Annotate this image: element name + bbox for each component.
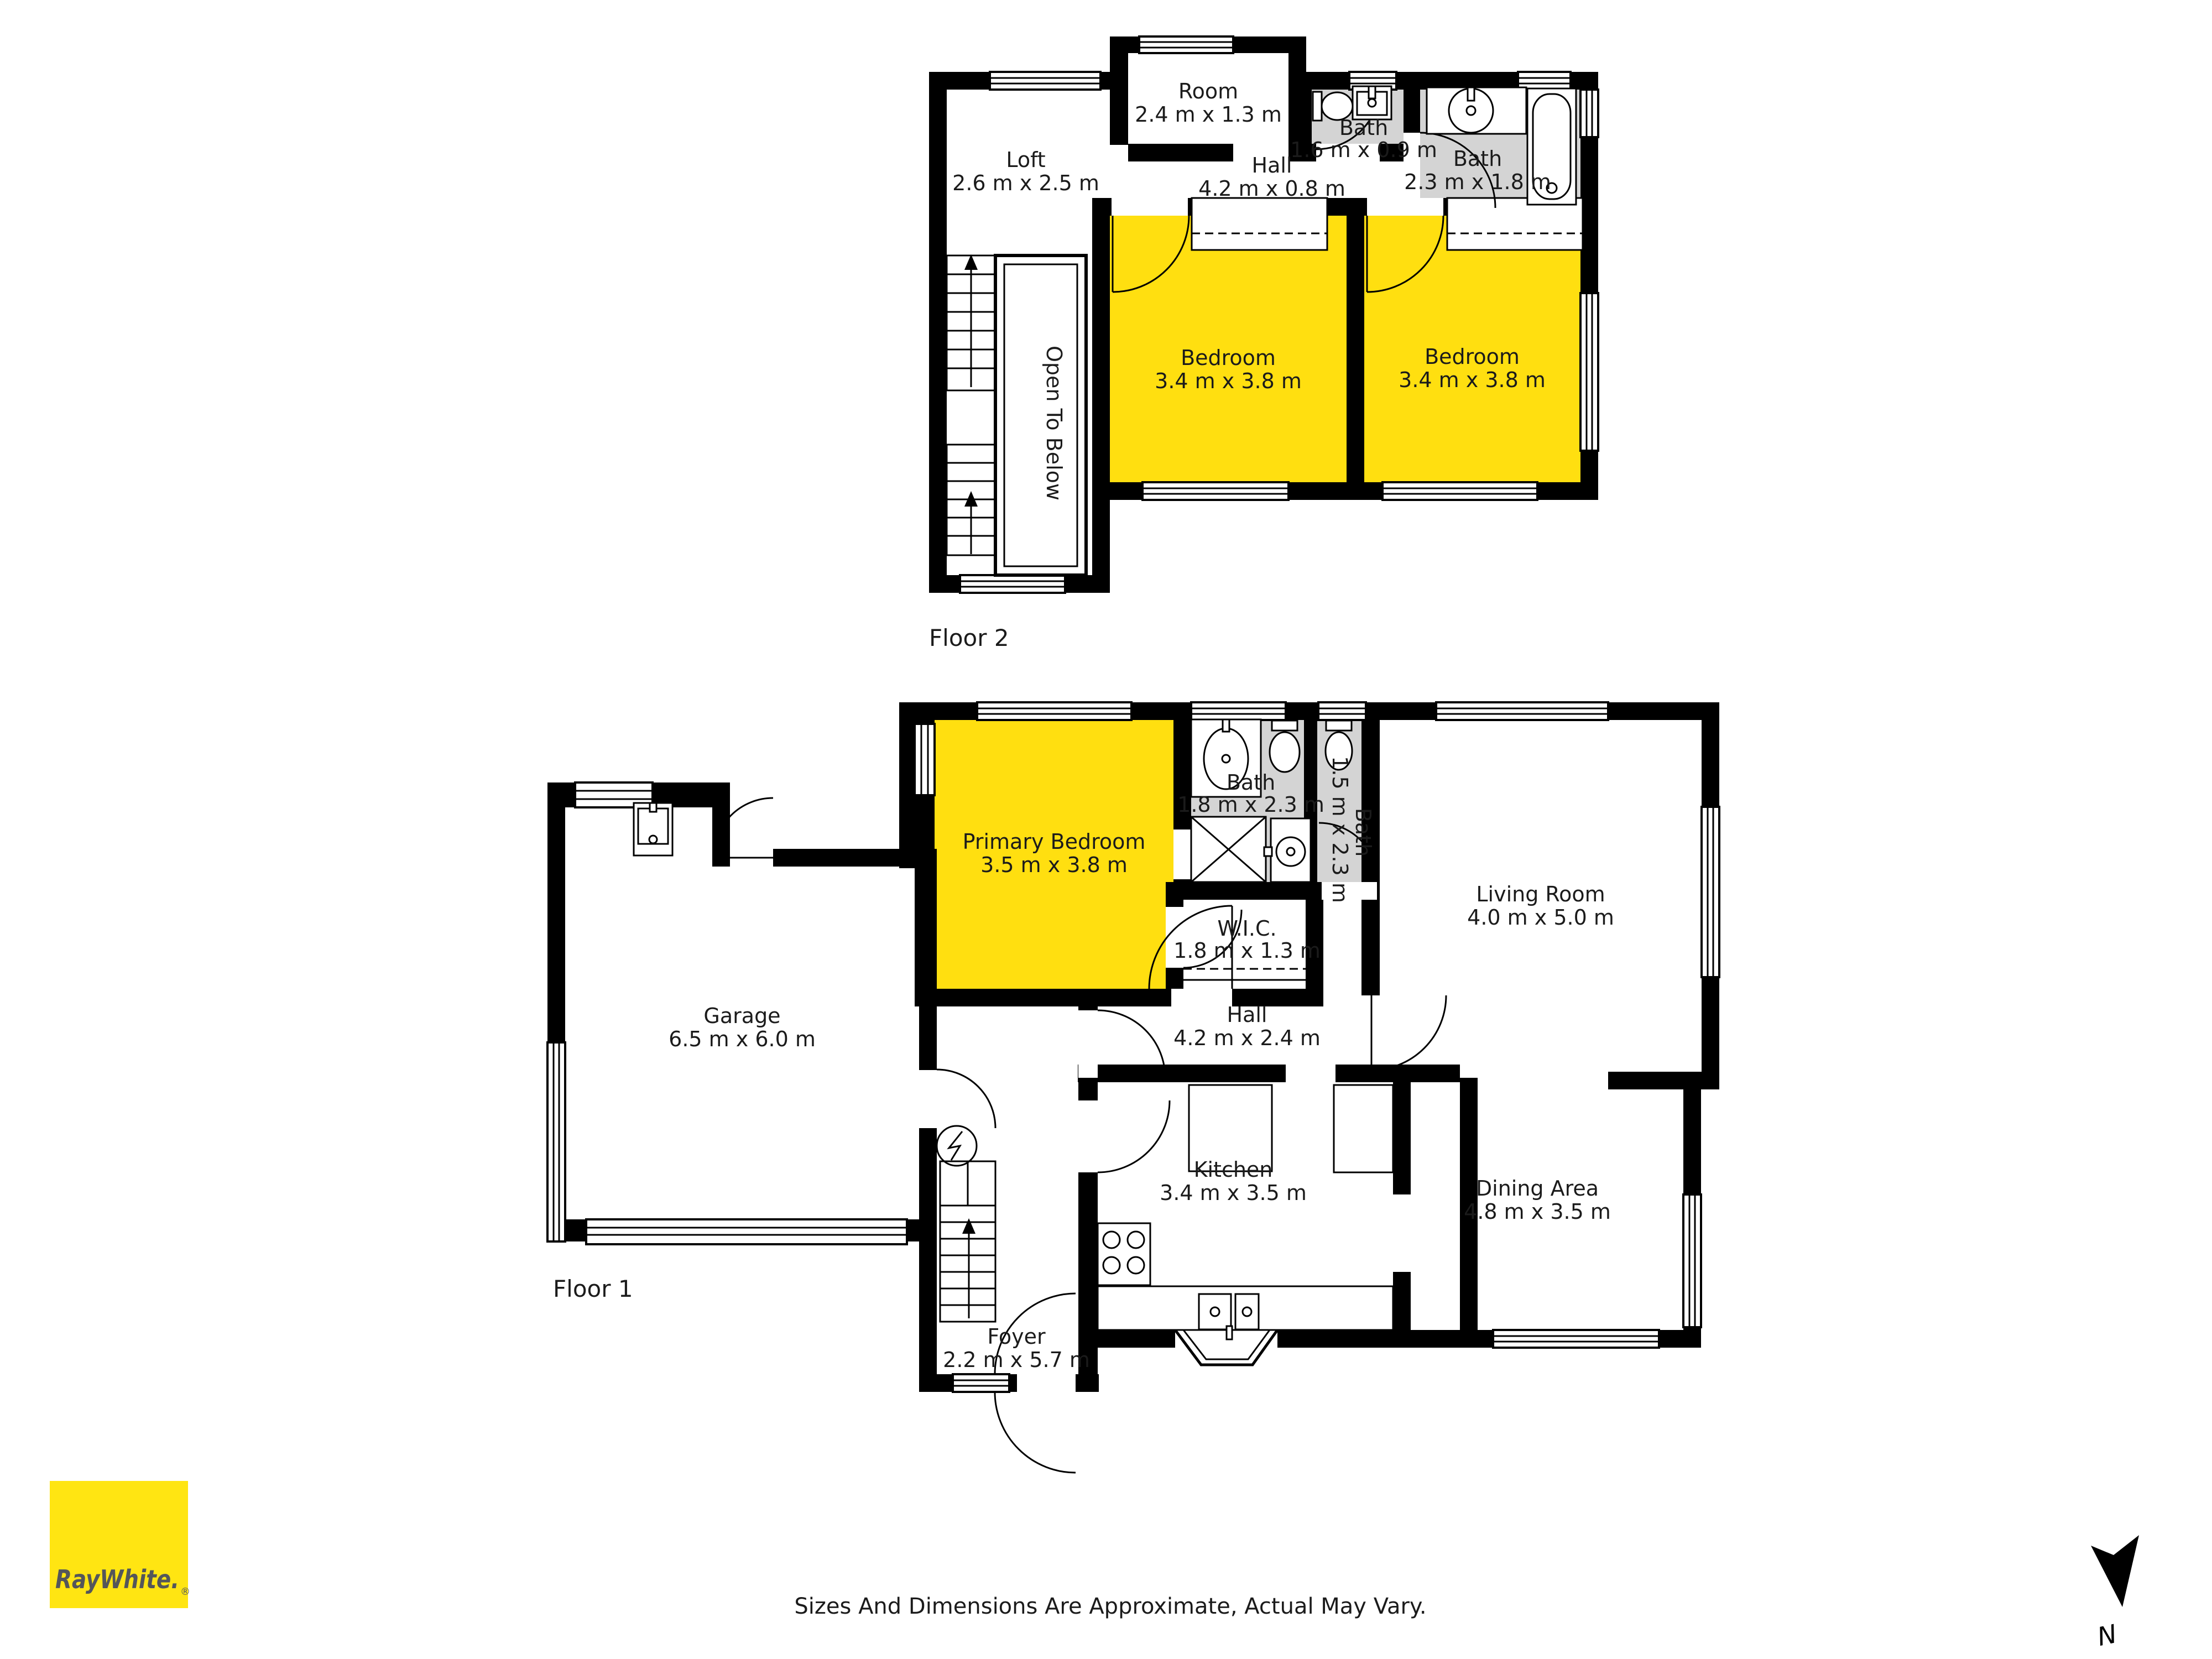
registered-mark: ® (180, 1586, 190, 1598)
foyer-dims: 2.2 m x 5.7 m (943, 1348, 1090, 1372)
floor-plan-page: Open To Below Loft 2.6 m x 2.5 m Room 2.… (0, 0, 2212, 1659)
bedroom-left-dims: 3.4 m x 3.8 m (1155, 369, 1302, 393)
closet (1192, 198, 1327, 250)
north-label: N (2095, 1619, 2120, 1652)
loft-label: Loft (1006, 148, 1045, 172)
kitchen-door-opening (1078, 1100, 1098, 1172)
window (1142, 482, 1288, 500)
dining-area-label: Dining Area (1476, 1176, 1599, 1201)
ensuite-door-opening (1173, 830, 1191, 879)
shower-icon (1191, 817, 1266, 882)
floor2-tag: Floor 2 (929, 624, 1009, 651)
floor2-bath-small-dims: 1.6 m x 0.9 m (1290, 138, 1437, 162)
floor2-hall-label: Hall (1252, 153, 1292, 178)
hall-landing-door-opening (1078, 1010, 1098, 1078)
sink-icon (1264, 818, 1311, 882)
floor-plan-canvas: Open To Below Loft 2.6 m x 2.5 m Room 2.… (0, 0, 2212, 1659)
window (1702, 807, 1719, 977)
garage-dims: 6.5 m x 6.0 m (669, 1027, 816, 1051)
window (1139, 36, 1233, 53)
window (953, 1374, 1009, 1392)
bedroom-right-label: Bedroom (1425, 345, 1520, 369)
open-to-below-shaft (995, 255, 1086, 575)
primary-bedroom-dims: 3.5 m x 3.8 m (980, 853, 1128, 877)
floor2-bedroom-left-door-opening (1112, 198, 1188, 216)
floor1-tag: Floor 1 (553, 1275, 633, 1302)
floor1-plan: Garage 6.5 m x 6.0 m Primary Bedroom 3.5… (547, 702, 1719, 1473)
window (1580, 90, 1598, 137)
floor1-hall-dims: 4.2 m x 2.4 m (1173, 1026, 1321, 1050)
room-label: Room (1178, 79, 1238, 103)
floor1-bath-narrow-dims: 1.5 m x 2.3 m (1328, 756, 1352, 903)
floor1-bath-narrow-label: Bath (1351, 808, 1375, 857)
stairs (947, 254, 995, 555)
bedroom-left-label: Bedroom (1181, 346, 1276, 370)
window (960, 575, 1065, 593)
window (1683, 1194, 1701, 1327)
floor2-bath-label: Bath (1453, 147, 1502, 171)
stairs (940, 1161, 995, 1322)
kitchen-dims: 3.4 m x 3.5 m (1160, 1181, 1307, 1205)
foyer-label: Foyer (987, 1324, 1046, 1349)
garage-door (586, 1219, 907, 1244)
window (915, 724, 935, 795)
floor1-bath-label: Bath (1227, 770, 1275, 795)
floor1-hall-label: Hall (1227, 1003, 1267, 1027)
door-arc (1098, 1100, 1170, 1172)
ray-white-logo: RayWhite. ® (50, 1481, 190, 1608)
garage-hall-door-opening (919, 1070, 937, 1128)
dining-area-dims: 4.8 m x 3.5 m (1464, 1199, 1611, 1224)
closet (1183, 969, 1306, 980)
closet (1447, 198, 1583, 250)
front-door-opening (1017, 1374, 1076, 1392)
door-arc (937, 1070, 995, 1128)
primary-bedroom-label: Primary Bedroom (963, 830, 1146, 854)
floor2-bath-dims: 2.3 m x 1.8 m (1404, 170, 1551, 194)
toilet-icon (1270, 721, 1300, 772)
logo-text: RayWhite. (55, 1564, 179, 1594)
electrical-panel-icon (937, 1126, 977, 1166)
kitchen-entry-opening (1286, 1065, 1335, 1082)
window (1580, 293, 1598, 451)
kitchen-label: Kitchen (1194, 1157, 1273, 1182)
window (1318, 702, 1366, 720)
sink-icon (1353, 86, 1391, 119)
kitchen-dining-opening (1393, 1194, 1411, 1272)
living-room-dims: 4.0 m x 5.0 m (1467, 905, 1614, 930)
floor1-bath-dims: 1.8 m x 2.3 m (1177, 792, 1324, 817)
sink-icon (1427, 87, 1526, 134)
living-room-label: Living Room (1476, 882, 1605, 906)
room-dims: 2.4 m x 1.3 m (1135, 102, 1282, 127)
door-arc (1371, 995, 1446, 1070)
stove-icon (1098, 1223, 1150, 1285)
bedroom-right-dims: 3.4 m x 3.8 m (1399, 368, 1546, 392)
window (1383, 482, 1537, 500)
floor2-plan: Open To Below Loft 2.6 m x 2.5 m Room 2.… (929, 36, 1598, 651)
loft-dims: 2.6 m x 2.5 m (952, 171, 1099, 195)
wic-dims: 1.8 m x 1.3 m (1173, 938, 1321, 963)
window (977, 702, 1131, 720)
north-arrow-icon: N (2091, 1535, 2139, 1652)
disclaimer-text: Sizes And Dimensions Are Approximate, Ac… (794, 1594, 1426, 1619)
wic-label: W.I.C. (1217, 916, 1276, 941)
primary-door-opening (1171, 989, 1232, 1006)
garage-label: Garage (703, 1004, 780, 1028)
floor2-hall-dims: 4.2 m x 0.8 m (1198, 176, 1345, 201)
open-to-below-label: Open To Below (1042, 346, 1066, 500)
floor2-bath-small-label: Bath (1339, 116, 1388, 140)
window (1191, 702, 1286, 720)
window (1493, 1330, 1659, 1348)
window (1436, 702, 1608, 720)
window (990, 72, 1100, 90)
sink-icon (634, 803, 672, 855)
window (547, 1042, 565, 1241)
